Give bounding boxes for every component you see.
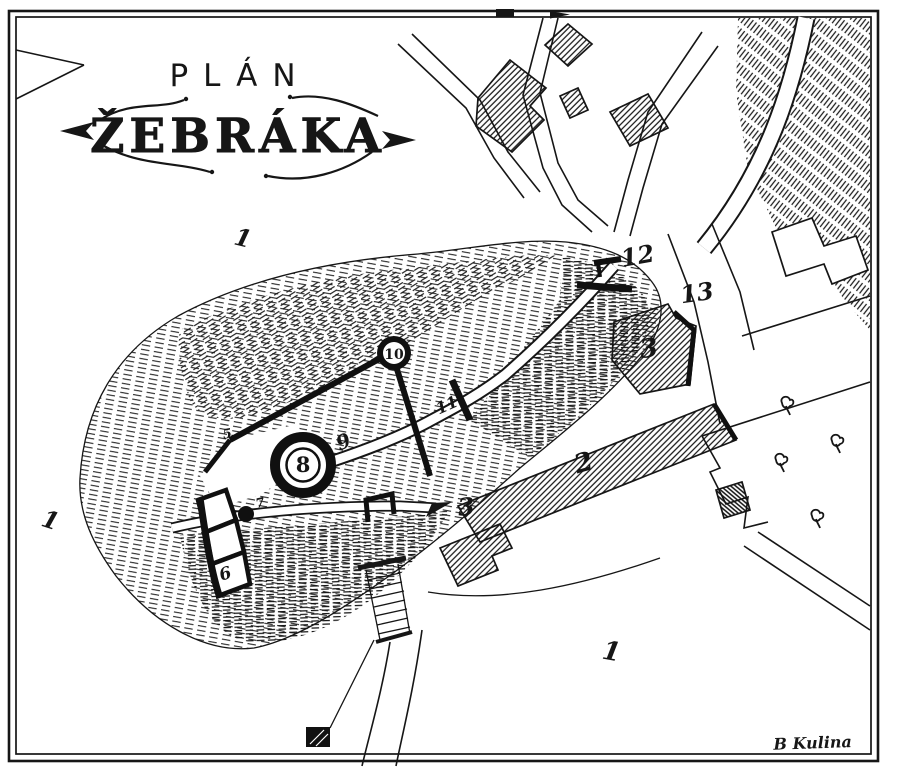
engraved-castle-plan: PLÁN ŽEBRÁKA 1112335678910111213 B Kulin… <box>0 0 900 778</box>
map-title-line2: ŽEBRÁKA <box>90 108 386 164</box>
bastion-blob <box>238 506 254 522</box>
label-tower-8: 8 <box>296 452 311 477</box>
edge-building <box>496 9 514 17</box>
label-tower-10: 10 <box>384 347 404 363</box>
map-title-line1: PLÁN <box>169 58 310 94</box>
label-road-13: 13 <box>678 276 715 309</box>
label-gate-12: 12 <box>619 238 657 272</box>
label-path-3: 3 <box>456 491 476 522</box>
cartographer-signature: B Kulina <box>772 732 852 754</box>
